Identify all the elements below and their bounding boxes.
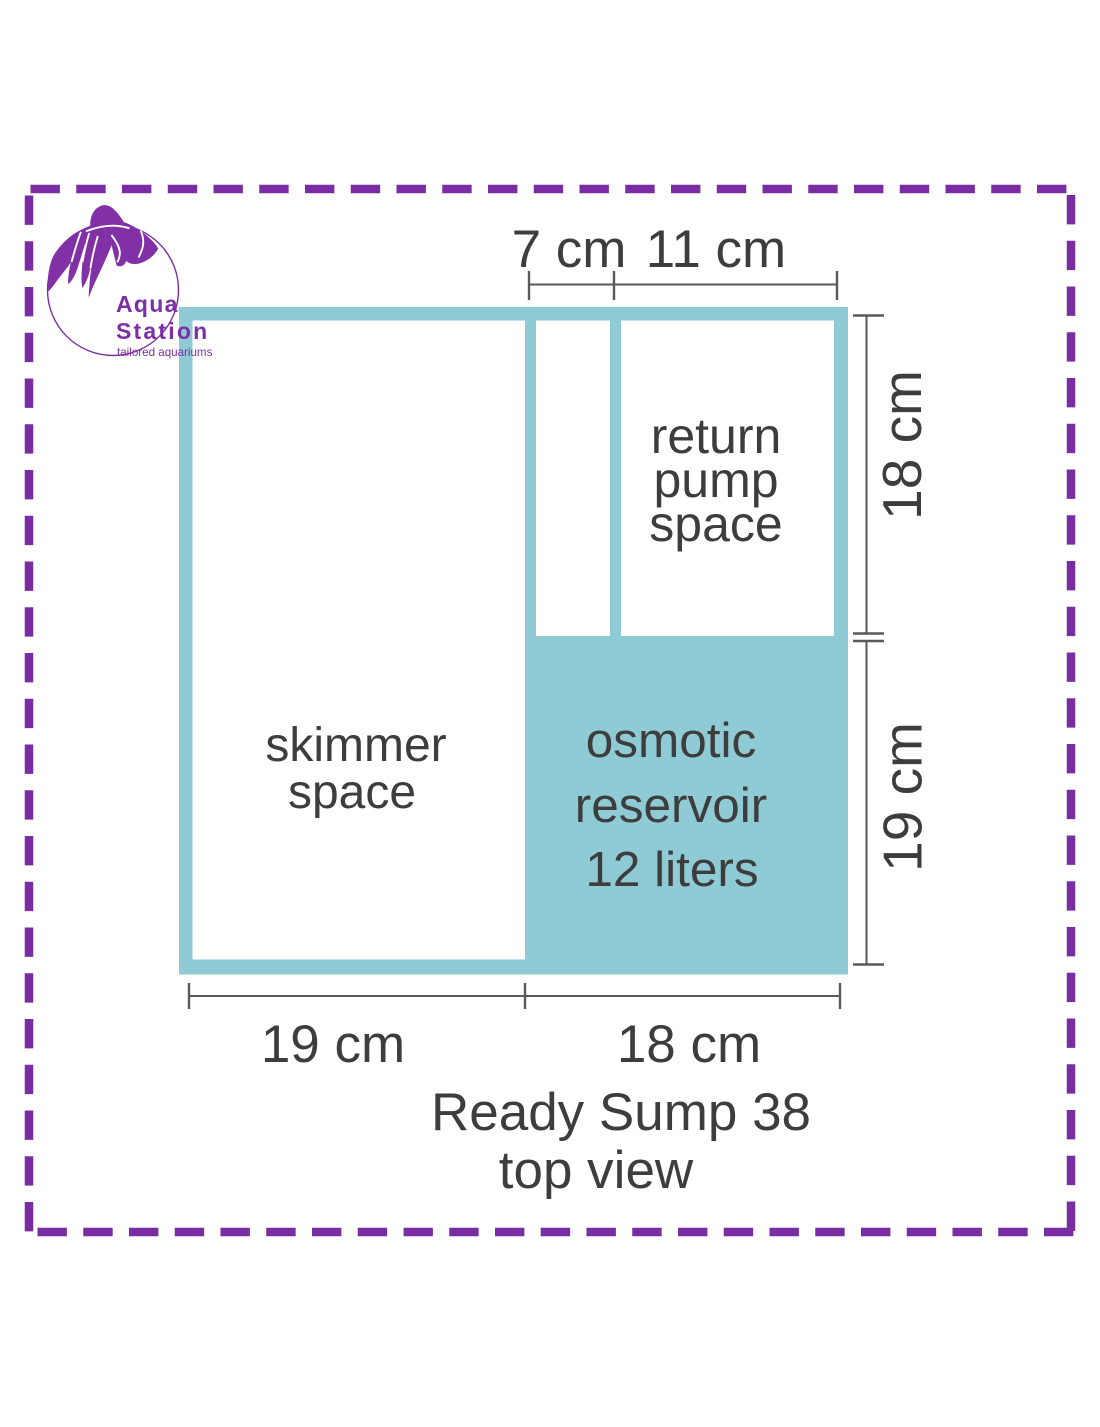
svg-text:Aqua: Aqua [116, 291, 179, 317]
svg-text:Station: Station [116, 318, 209, 344]
svg-text:osmotic: osmotic [586, 713, 757, 768]
svg-text:18 cm: 18 cm [871, 370, 933, 520]
svg-text:skimmer: skimmer [265, 719, 446, 772]
svg-text:7 cm: 7 cm [512, 220, 627, 279]
svg-text:reservoir: reservoir [575, 778, 768, 833]
svg-text:Ready Sump 38: Ready Sump 38 [431, 1083, 811, 1142]
svg-text:19 cm: 19 cm [261, 1015, 405, 1074]
svg-text:top view: top view [499, 1141, 694, 1200]
svg-text:space: space [288, 766, 416, 819]
svg-text:19 cm: 19 cm [872, 722, 934, 872]
svg-text:11 cm: 11 cm [646, 220, 786, 279]
svg-text:18 cm: 18 cm [617, 1015, 761, 1074]
svg-text:tailored aquariums: tailored aquariums [117, 346, 213, 359]
svg-text:space: space [649, 496, 782, 552]
svg-text:12 liters: 12 liters [585, 842, 758, 897]
